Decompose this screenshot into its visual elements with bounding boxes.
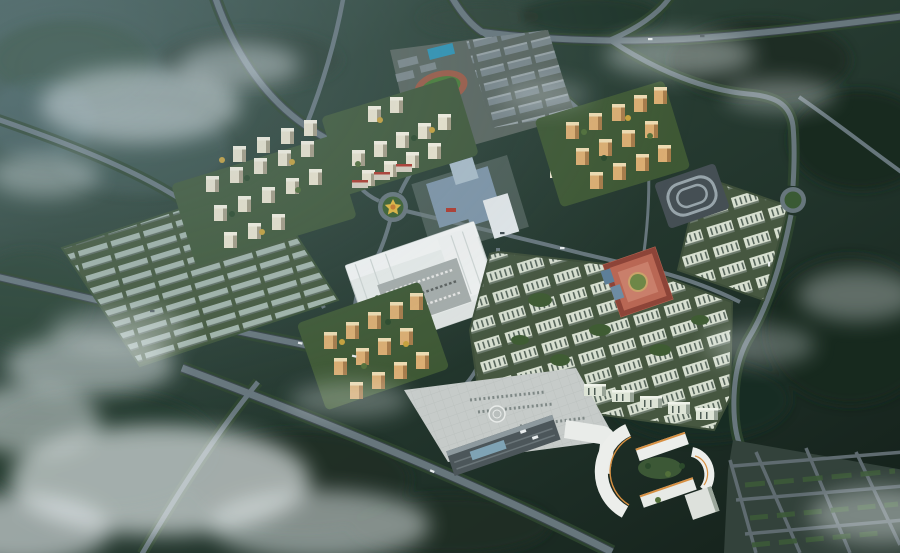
aerial-rendering bbox=[0, 0, 900, 553]
aerial-rendering-stage bbox=[0, 0, 900, 553]
atmospheric-haze bbox=[0, 0, 900, 553]
